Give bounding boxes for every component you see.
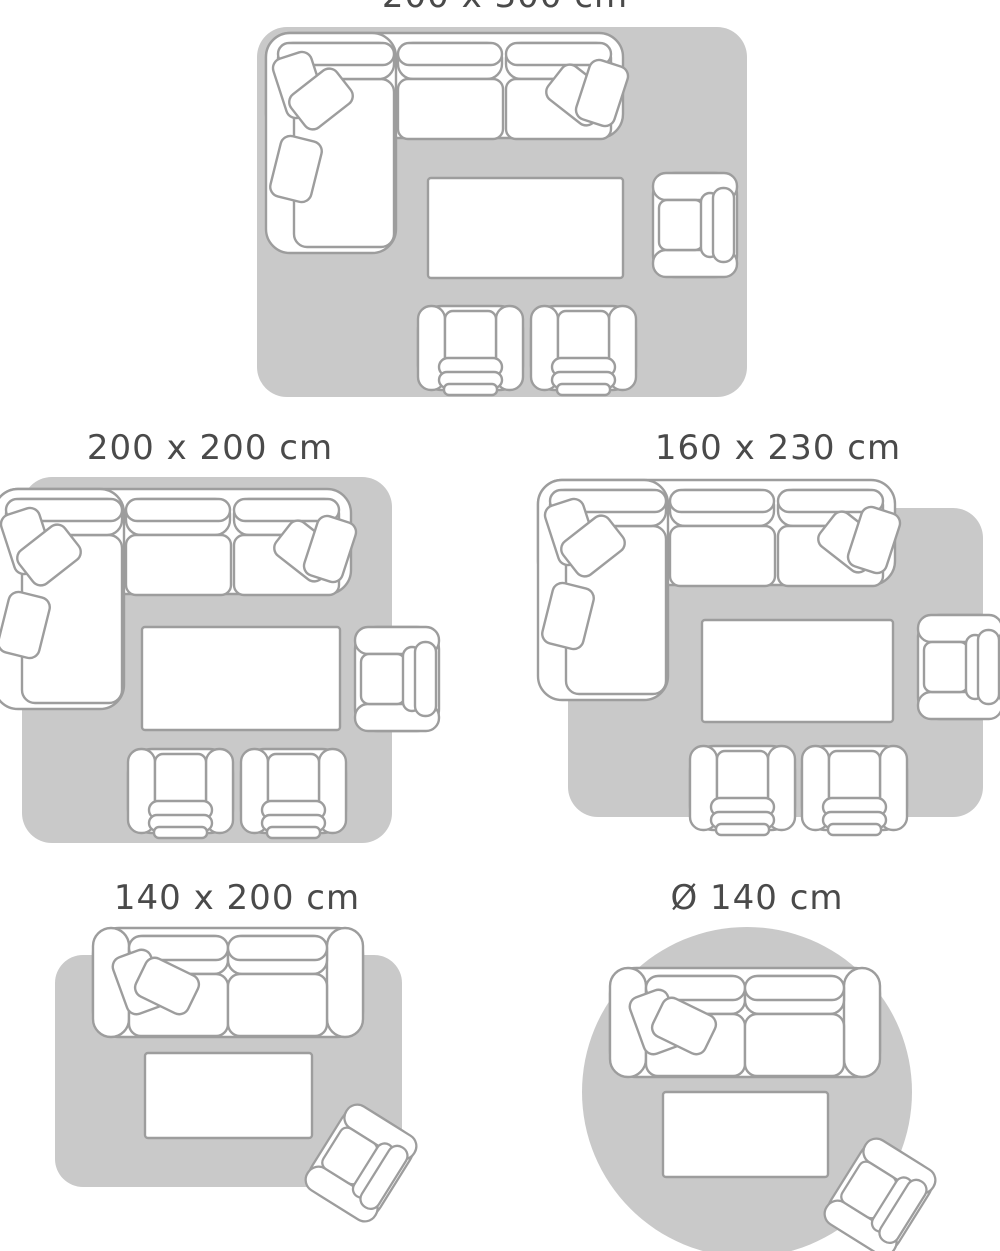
layout-200x300: [257, 27, 747, 397]
coffee-table: [663, 1092, 828, 1177]
club-chair-right: [802, 746, 907, 835]
rug-size-guide: 200 x 300 cm 200 x 200 cm 160 x 230 cm 1…: [0, 0, 1000, 1251]
coffee-table: [145, 1053, 312, 1138]
club-chair-left: [128, 749, 233, 838]
two-seat-sofa: [93, 928, 363, 1037]
layout-diameter-140: [582, 927, 940, 1251]
layout-140x200: [55, 928, 421, 1226]
coffee-table: [702, 620, 893, 722]
club-chair-left: [690, 746, 795, 835]
coffee-table: [428, 178, 623, 278]
armchair: [653, 173, 737, 277]
rug-size-guide-illustration: [0, 0, 1000, 1251]
armchair: [355, 627, 439, 731]
club-chair-left: [418, 306, 523, 395]
layout-200x200: [0, 477, 439, 843]
coffee-table: [142, 627, 340, 730]
two-seat-sofa: [610, 968, 880, 1077]
armchair: [918, 615, 1000, 719]
club-chair-right: [531, 306, 636, 395]
club-chair-right: [241, 749, 346, 838]
layout-160x230: [538, 480, 1000, 835]
